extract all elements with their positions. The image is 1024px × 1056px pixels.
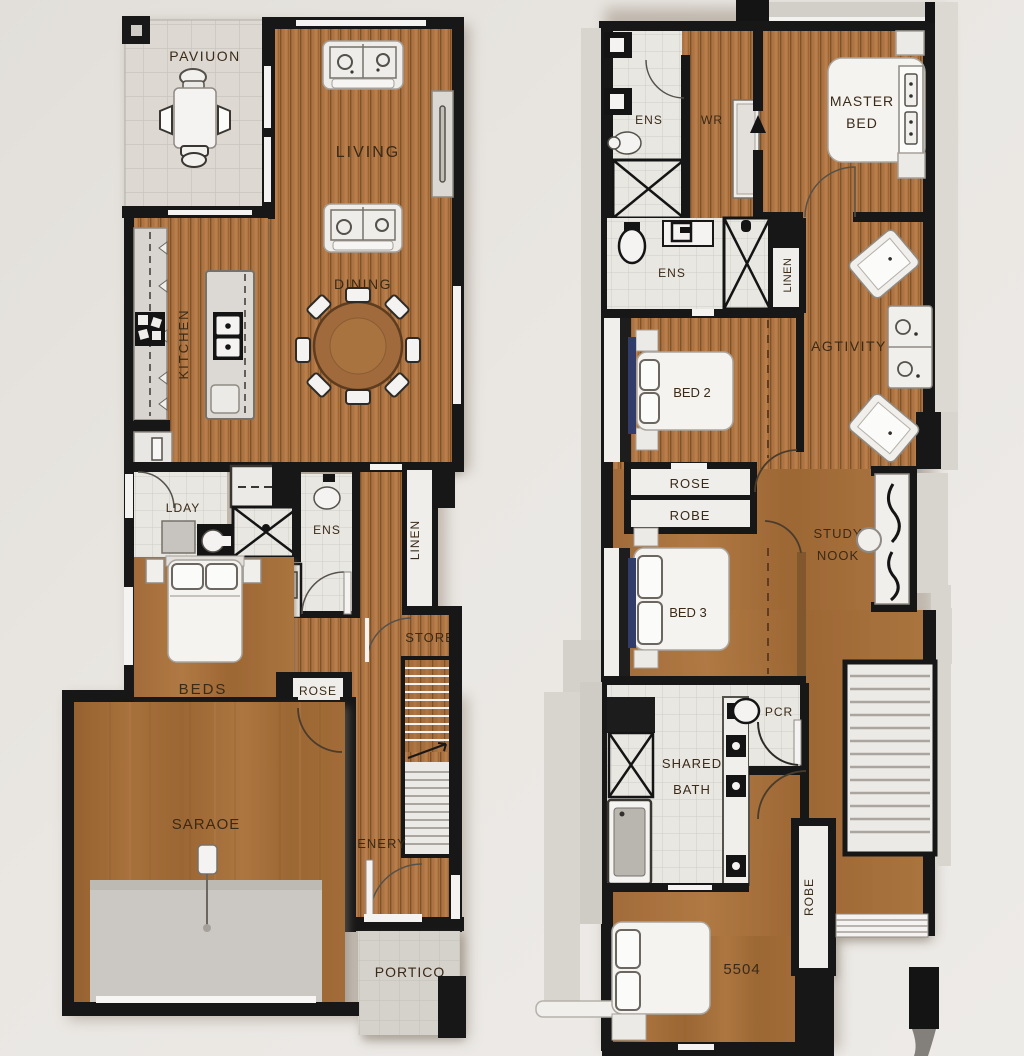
svg-text:PAVIUON: PAVIUON — [169, 48, 240, 64]
svg-text:NOOK: NOOK — [817, 548, 859, 563]
svg-text:5504: 5504 — [723, 961, 760, 978]
svg-text:PORTICO: PORTICO — [375, 964, 446, 980]
svg-text:SHARED: SHARED — [662, 756, 722, 771]
svg-text:ROSE: ROSE — [299, 684, 337, 698]
svg-text:BED: BED — [846, 115, 878, 131]
svg-text:LINEN: LINEN — [408, 520, 422, 560]
svg-text:STORE: STORE — [405, 630, 455, 645]
svg-text:PCR: PCR — [765, 705, 793, 719]
svg-text:WR: WR — [701, 113, 723, 127]
svg-text:LIVING: LIVING — [336, 144, 400, 161]
svg-text:ROBE: ROBE — [670, 508, 711, 523]
svg-text:ENERY: ENERY — [357, 836, 407, 851]
svg-text:AGTIVITY: AGTIVITY — [811, 338, 887, 354]
svg-text:ENS: ENS — [635, 113, 663, 127]
svg-text:ROBE: ROBE — [802, 878, 816, 916]
svg-text:ENS: ENS — [658, 266, 686, 280]
svg-text:MASTER: MASTER — [830, 93, 894, 109]
svg-text:BED 3: BED 3 — [669, 605, 707, 620]
svg-text:ENS: ENS — [313, 523, 341, 537]
svg-text:ROSE: ROSE — [670, 476, 711, 491]
svg-text:BEDS: BEDS — [179, 681, 228, 698]
svg-text:BATH: BATH — [673, 782, 711, 797]
svg-text:BED 2: BED 2 — [673, 385, 711, 400]
svg-text:LINEN: LINEN — [782, 258, 794, 293]
svg-text:SARAOE: SARAOE — [172, 816, 241, 833]
svg-text:KITCHEN: KITCHEN — [176, 308, 191, 379]
svg-text:STUDY: STUDY — [813, 526, 862, 541]
svg-text:LDAY: LDAY — [166, 501, 200, 515]
